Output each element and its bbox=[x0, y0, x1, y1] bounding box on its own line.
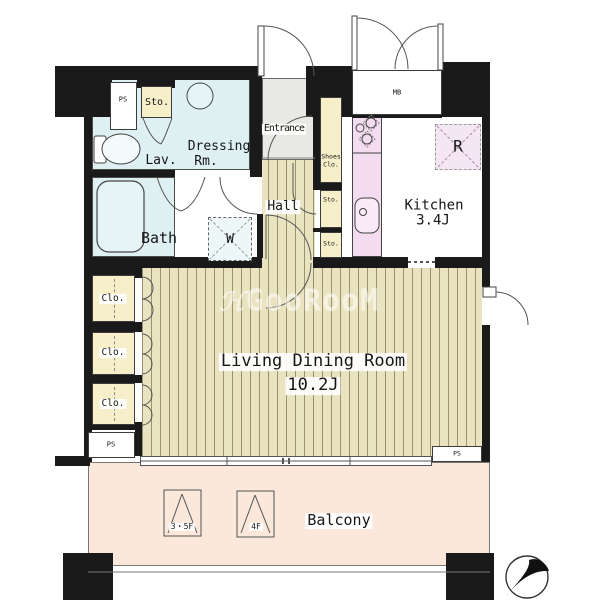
wall-segment bbox=[112, 66, 258, 80]
wall-segment bbox=[84, 375, 142, 383]
closet-2-label: Clo. bbox=[100, 348, 127, 358]
side-door-leaf bbox=[483, 287, 496, 297]
kitchen-size-label: 3.4J bbox=[416, 214, 450, 229]
refrigerator-label: R bbox=[453, 139, 463, 156]
kitchen-counter bbox=[352, 117, 382, 257]
watermark: ℋGooRooM bbox=[219, 284, 379, 319]
wall-segment bbox=[442, 62, 490, 117]
meter-box-label: MB bbox=[393, 89, 401, 96]
closet-3-label: Clo. bbox=[100, 399, 127, 409]
wall-segment bbox=[313, 183, 342, 190]
shoes-closet bbox=[320, 97, 342, 183]
wall-segment bbox=[435, 257, 482, 268]
watermark-text: GooRooM bbox=[246, 284, 379, 319]
watermark-icon: ℋ bbox=[219, 288, 246, 318]
dressing-room-label-2: Rm. bbox=[194, 155, 217, 169]
entrance-label: Entrance bbox=[262, 124, 306, 135]
hall-label: Hall bbox=[265, 200, 300, 214]
wall-segment bbox=[84, 268, 135, 275]
hatch-4f-label: 4F bbox=[249, 523, 263, 531]
side-door-arc bbox=[496, 292, 528, 325]
floor-plan: PS Sto. Dressing Rm. Lav. Bath W Entranc… bbox=[0, 0, 600, 600]
lavatory-label: Lav. bbox=[145, 154, 176, 168]
storage-low-label: Sto. bbox=[323, 241, 339, 248]
wall-segment bbox=[135, 430, 142, 456]
shoes-closet-label-2: Clo. bbox=[323, 162, 339, 169]
pipe-space-br-label: PS bbox=[453, 451, 461, 458]
wall-segment bbox=[55, 66, 112, 117]
living-dining-label: Living Dining Room bbox=[219, 353, 407, 371]
service-door-arc-right bbox=[395, 26, 438, 69]
wall-segment bbox=[313, 117, 320, 183]
shoes-closet-label: Shoes bbox=[321, 154, 341, 161]
wall-segment bbox=[84, 322, 142, 332]
pipe-space-bl-label: PS bbox=[107, 441, 115, 448]
living-size-label: 10.2J bbox=[285, 377, 340, 395]
storage-mid-label: Sto. bbox=[323, 197, 339, 204]
wall-segment bbox=[257, 214, 263, 258]
wall-segment bbox=[313, 257, 408, 268]
wall-segment bbox=[84, 115, 92, 462]
wall-corner-block bbox=[446, 553, 494, 600]
wall-segment bbox=[84, 170, 175, 177]
pipe-space-top bbox=[110, 82, 137, 130]
hatch-3-5f-label: 3・5F bbox=[169, 523, 195, 531]
sliding-window bbox=[140, 456, 432, 466]
compass-icon bbox=[506, 556, 549, 598]
wall-segment bbox=[55, 456, 90, 466]
pipe-space-top-label: PS bbox=[119, 96, 127, 103]
dressing-room-label: Dressing bbox=[188, 140, 251, 154]
service-door-arc-left bbox=[357, 18, 408, 69]
washer-label: W bbox=[226, 233, 234, 247]
wall-segment bbox=[250, 66, 262, 177]
kitchen-label: Kitchen bbox=[404, 199, 463, 214]
storage-top-label: Sto. bbox=[145, 98, 169, 109]
closet-1-label: Clo. bbox=[100, 294, 127, 304]
balcony-label: Balcony bbox=[305, 513, 372, 529]
wall-segment bbox=[482, 117, 490, 287]
balcony-area bbox=[88, 462, 490, 566]
wall-corner-block bbox=[63, 553, 113, 600]
wall-segment bbox=[482, 325, 490, 462]
dressing-door-arc bbox=[220, 177, 257, 214]
bath-label: Bath bbox=[141, 231, 177, 247]
wall-segment bbox=[135, 268, 142, 278]
